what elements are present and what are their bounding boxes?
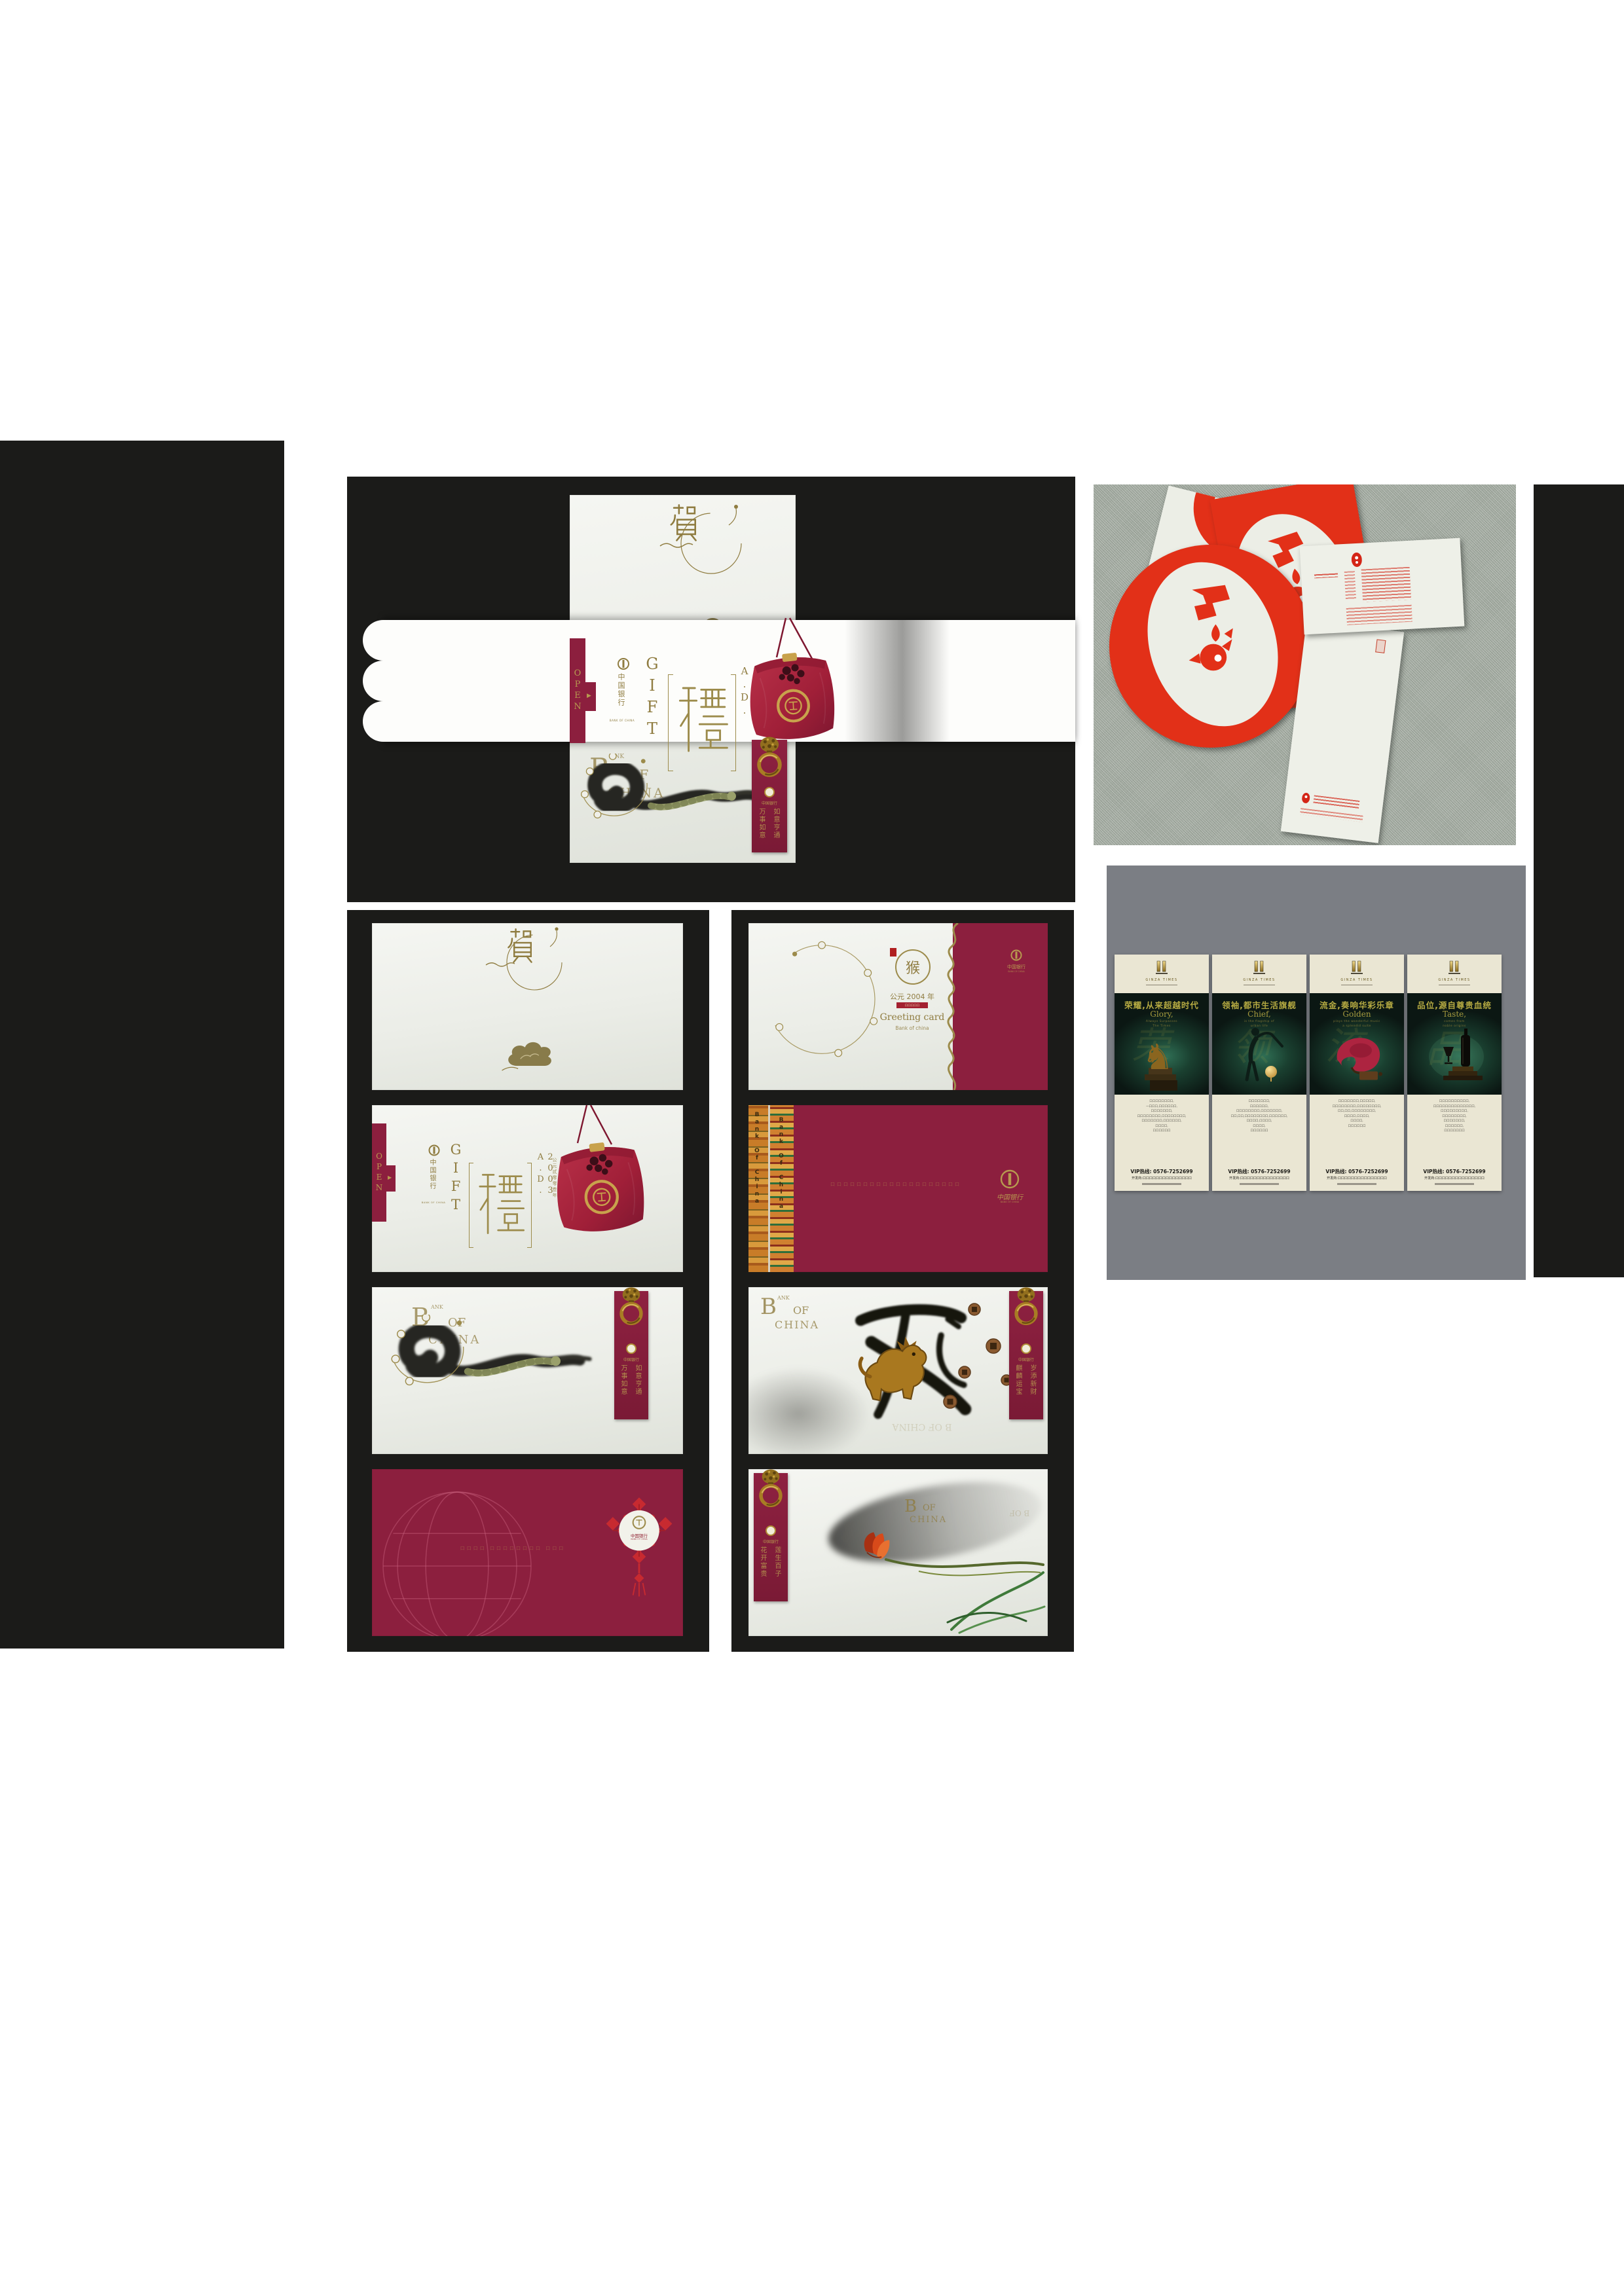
watermark-mirrored: B OF bbox=[1000, 1508, 1039, 1518]
poster-sub2: a splendid suite bbox=[1310, 1025, 1404, 1028]
letterhead-text-col bbox=[1361, 567, 1412, 602]
strip-text-right: 莲生百子 bbox=[772, 1546, 782, 1596]
zodiac-seal bbox=[890, 948, 896, 957]
red-pouch bbox=[734, 649, 849, 747]
right-black-strip bbox=[1534, 484, 1624, 1277]
body-line: 口口口口口口口口,口口口口口口口, bbox=[1236, 1110, 1282, 1114]
open-label: OPEN bbox=[573, 668, 583, 713]
poster-sub1: is the flagship of bbox=[1212, 1020, 1306, 1023]
card-ink-stroke: B ANK OF CHINA 中国银行 如意亨通 万事如意 bbox=[372, 1287, 683, 1454]
watermark-b: B bbox=[760, 1294, 777, 1320]
cloud-bracket-border bbox=[942, 923, 965, 1090]
tall-card-logo-icon bbox=[1301, 792, 1310, 803]
poster-image-area: 流 流金,奏响华彩乐章 Golden plays the wonderful m… bbox=[1310, 993, 1404, 1095]
boc-logo-icon bbox=[1010, 949, 1022, 961]
body-line: 口口口口口口口, bbox=[1249, 1100, 1270, 1104]
gift-envelope-panel: OPEN ▶ 中国银行 BANK OF CHINA GIFT 2003 A.D.… bbox=[347, 477, 1075, 902]
photo-letterhead bbox=[1300, 538, 1465, 635]
strip-text-left: 万事如意 bbox=[756, 808, 766, 850]
door-knocker-icon bbox=[1009, 1287, 1043, 1329]
strip-text-left: 麒麟运宝 bbox=[1013, 1364, 1023, 1414]
greeting-card-line: Greeting card bbox=[879, 1012, 945, 1023]
body-line: 口口口口口口口口口, bbox=[1441, 1110, 1468, 1114]
body-line: 口口口口口口口 bbox=[1444, 1129, 1465, 1133]
ink-stroke-jade-hook bbox=[573, 754, 769, 862]
brocade-strip-1: Bank Of China bbox=[748, 1105, 768, 1272]
ginza-logo-icon bbox=[1149, 960, 1175, 977]
open-arrow-icon: ▶ bbox=[587, 693, 591, 699]
card-tulip: B OF CHINA B OF 中国银行 莲生百子 花开富贵 bbox=[748, 1469, 1048, 1636]
brand-name: GINZA TIMES bbox=[1212, 978, 1306, 982]
body-line: 口口口口口口 bbox=[1348, 1125, 1366, 1129]
body-line: 口口口口,口口口口, bbox=[1344, 1115, 1370, 1119]
boc-cn-small: 中国银行 bbox=[1003, 964, 1030, 970]
watermark-mirrored: B OF CHINA bbox=[879, 1421, 965, 1432]
fine-print-line bbox=[1435, 1183, 1474, 1185]
poster-body-text: 口口口口口口口,口口口口口, 口口口口口口口口,口口口口口口口口, 口口,口口,… bbox=[1310, 1100, 1404, 1129]
poster-taste: GINZA TIMES 品 品位,源自尊贵血统 Taste, comes fro… bbox=[1407, 955, 1502, 1191]
body-line: 口口口口, bbox=[1155, 1125, 1168, 1129]
li-character-glyph bbox=[475, 1165, 526, 1243]
poster-sub1: comes from bbox=[1407, 1020, 1502, 1023]
body-line: 口口口口口口 bbox=[1153, 1129, 1171, 1133]
brand-rule bbox=[1244, 985, 1275, 985]
strip-logo-icon bbox=[766, 1525, 776, 1536]
left-black-panel bbox=[0, 441, 284, 1649]
seal-line: 口口口口口 bbox=[896, 1002, 928, 1008]
brocade-strip-text: Bank Of China bbox=[754, 1112, 760, 1269]
watermark-china: CHINA bbox=[775, 1319, 819, 1331]
strip-text-left: 花开富贵 bbox=[758, 1546, 767, 1596]
poster-headline-en: Glory, bbox=[1115, 1010, 1209, 1019]
boc-en-small: BANK OF CHINA bbox=[991, 1201, 1029, 1203]
poster-chief: GINZA TIMES 领 领袖,都市生活旗舰 Chief, is the fl… bbox=[1212, 955, 1306, 1191]
li-bracket-right bbox=[527, 1163, 532, 1248]
he-character-glyph bbox=[669, 503, 703, 542]
chinese-knot-icon bbox=[602, 1493, 676, 1599]
watermark-ank: ANK bbox=[431, 1304, 443, 1310]
cards-panel-right: 猴 公元 2004 年 口口口口口 Greeting card Bank of … bbox=[731, 910, 1074, 1652]
poster-image-area: 品 品位,源自尊贵血统 Taste, comes from noble orig… bbox=[1407, 993, 1502, 1095]
strip-logo-icon bbox=[1021, 1343, 1031, 1354]
body-line: 一口口口,口口口口口口, bbox=[1146, 1105, 1177, 1109]
body-line: 口口口口口口口口口口口口口口, bbox=[1433, 1105, 1475, 1109]
card-brocade: Bank Of China Bank Of China 口口口口口口口口口口口口… bbox=[748, 1105, 1048, 1272]
open-tab: OPEN bbox=[570, 638, 585, 743]
poster-headline-en: Chief, bbox=[1212, 1010, 1306, 1019]
brand-name: GINZA TIMES bbox=[1407, 978, 1502, 982]
boc-en-small: BANK OF CHINA bbox=[1003, 970, 1030, 973]
portfolio-page: OPEN ▶ 中国银行 BANK OF CHINA GIFT 2003 A.D.… bbox=[0, 0, 1624, 2296]
brand-name: GINZA TIMES bbox=[1115, 978, 1209, 982]
strip-text-right: 如意亨通 bbox=[771, 808, 781, 850]
tall-card-micro-text bbox=[1313, 795, 1359, 809]
medallion-en: BANK OF CHINA bbox=[621, 1538, 657, 1540]
ginza-logo-icon bbox=[1344, 960, 1370, 977]
developer-line: 开发商:口口口口口口口口口口口口口口口 bbox=[1312, 1176, 1401, 1180]
vip-hotline: VIP热线: 0576-7252699 bbox=[1115, 1168, 1209, 1175]
door-knocker-icon bbox=[614, 1286, 648, 1329]
zodiac-ring: 猴 bbox=[895, 949, 931, 985]
strip-logo-cn: 中国银行 bbox=[1011, 1357, 1041, 1362]
body-line: 口口口口口口, bbox=[1250, 1105, 1268, 1109]
strip-text-left: 万事如意 bbox=[618, 1364, 628, 1414]
body-line: 口口口口口口口口口口, bbox=[1439, 1100, 1469, 1104]
equestrian-statue-icon: ♞ bbox=[1133, 1027, 1185, 1093]
body-line: 口口口口口口, bbox=[1445, 1125, 1464, 1129]
poster-image-area: 领 领袖,都市生活旗舰 Chief, is the flagship of ur… bbox=[1212, 993, 1306, 1095]
poster-sub1: plays the wonderful music bbox=[1310, 1020, 1404, 1023]
cards-panel-left: OPEN ▶ 中国银行 BANK OF CHINA GIFT 2003 A.D.… bbox=[347, 910, 709, 1652]
brand-rule bbox=[1341, 985, 1373, 985]
ink-stroke-jade-hook bbox=[382, 1315, 598, 1432]
letterhead-label-col bbox=[1344, 571, 1356, 600]
tall-card-micro-text bbox=[1300, 808, 1363, 822]
faint-text-row: 口口口口口口口口口口口口口口口口口口口口 bbox=[814, 1181, 978, 1188]
fine-print-line bbox=[1142, 1183, 1181, 1185]
developer-line: 开发商:口口口口口口口口口口口口口口口 bbox=[1410, 1176, 1499, 1180]
bank-line: Bank of china bbox=[879, 1025, 945, 1031]
year-2004-line: 公元 2004 年 bbox=[879, 991, 945, 1002]
card-he-cover bbox=[372, 923, 683, 1090]
poster-headline-en: Taste, bbox=[1407, 1010, 1502, 1019]
card-gift: OPEN ▶ 中国银行 BANK OF CHINA GIFT 2003 A.D.… bbox=[372, 1105, 683, 1272]
brocade-strip-2: Bank Of China bbox=[770, 1105, 794, 1272]
body-line: 口口口口口口口口,口口口口口口口口, bbox=[1333, 1105, 1382, 1109]
body-line: 口口口口口口口,口口口口口口, bbox=[1141, 1120, 1181, 1123]
band-scallop bbox=[363, 620, 403, 661]
brocade-strip-text: Bank Of China bbox=[778, 1117, 784, 1267]
boc-cn-vertical: 中国银行 bbox=[427, 1159, 437, 1198]
strip-logo-cn: 中国银行 bbox=[616, 1357, 646, 1362]
wine-pedestal-icon bbox=[1424, 1027, 1486, 1086]
body-line: 口口口口口口口,口口口口口, bbox=[1338, 1100, 1376, 1104]
strip-logo-cn: 中国银行 bbox=[756, 1539, 786, 1544]
body-line: 口口,口口,口口口口口口口口, bbox=[1338, 1110, 1376, 1114]
golfer-silhouette-icon bbox=[1233, 1025, 1285, 1087]
boc-cn-vertical: 中国银行 bbox=[616, 673, 626, 716]
strip-logo-icon bbox=[626, 1343, 637, 1354]
watermark-ank: ANK bbox=[777, 1295, 790, 1301]
brand-rule bbox=[1146, 985, 1177, 985]
body-line: 口口口口, bbox=[1350, 1120, 1363, 1123]
poster-panel: GINZA TIMES 荣 荣耀,从来超越时代 Glory, Always Su… bbox=[1107, 866, 1526, 1280]
open-label: OPEN bbox=[375, 1152, 384, 1194]
fish-logo-icon bbox=[1175, 579, 1253, 681]
body-line: 口口口口口口 bbox=[1251, 1129, 1268, 1133]
faint-text-row: 口口口口 口口口口口口口口 口口口 bbox=[424, 1545, 601, 1552]
poster-golden: GINZA TIMES 流 流金,奏响华彩乐章 Golden plays the… bbox=[1310, 955, 1404, 1191]
card-bottom-section: B ANK OF CHINA 中国银行 如意亨通 万事如意 bbox=[570, 742, 796, 863]
ink-crescent-icon bbox=[763, 933, 881, 1072]
li-bracket-left bbox=[469, 1163, 473, 1248]
ginza-logo-icon bbox=[1441, 960, 1467, 977]
vip-hotline: VIP热线: 0576-7252699 bbox=[1407, 1168, 1502, 1175]
red-pouch bbox=[540, 1138, 659, 1240]
strip-logo-icon bbox=[764, 787, 775, 797]
poster-body-text: 口口口口口口口, 口口口口口口, 口口口口口口口口,口口口口口口口, 口口,口口… bbox=[1212, 1100, 1306, 1133]
globe-lines-icon bbox=[372, 1478, 565, 1636]
fine-print-line bbox=[1240, 1183, 1279, 1185]
poster-body-text: 口口口口口口口口, 一口口口,口口口口口口, 口口口口口口口, 口口口口口口口口… bbox=[1115, 1100, 1209, 1133]
ginza-logo-icon bbox=[1246, 960, 1272, 977]
band-scallop bbox=[363, 701, 403, 742]
gramophone-icon bbox=[1328, 1029, 1387, 1085]
card-monkey-2004: 猴 公元 2004 年 口口口口口 Greeting card Bank of … bbox=[748, 923, 1048, 1090]
brand-name: GINZA TIMES bbox=[1310, 978, 1404, 982]
boc-logo-icon bbox=[428, 1144, 440, 1156]
he-character-glyph bbox=[507, 927, 538, 964]
watermark-of: OF bbox=[793, 1304, 809, 1317]
body-line: 口口口口口口口口,口口口口口口口口, bbox=[1137, 1115, 1187, 1119]
grass-icon bbox=[945, 1567, 1046, 1636]
zodiac-character: 猴 bbox=[906, 957, 920, 977]
fine-print-line bbox=[1337, 1183, 1376, 1185]
boc-logo-icon bbox=[1000, 1169, 1020, 1189]
tall-card-stamp bbox=[1375, 639, 1386, 653]
body-line: 口口口口口口口, bbox=[1151, 1110, 1173, 1114]
poster-headline-en: Golden bbox=[1310, 1010, 1404, 1019]
qilin-statue-icon bbox=[848, 1332, 934, 1409]
body-line: 口口口口口口口, bbox=[1444, 1120, 1466, 1123]
poster-sub1: Always Surpasses bbox=[1115, 1020, 1209, 1023]
card-knot: 口口口口 口口口口口口口口 口口口 中国银行 BANK OF CHINA bbox=[372, 1469, 683, 1636]
boc-cn-script: 中国银行 bbox=[991, 1192, 1029, 1201]
band-shade bbox=[845, 620, 950, 742]
letterhead-text-col2 bbox=[1346, 605, 1412, 625]
letterhead-logo-icon bbox=[1351, 553, 1362, 568]
body-line: 口口口口口口口口, bbox=[1442, 1115, 1466, 1119]
band-scallop bbox=[363, 661, 403, 701]
door-knocker-icon bbox=[752, 735, 787, 781]
card-sui-qilin: B ANK OF CHINA B OF CHINA 中国银行 岁添新财 麒麟运宝 bbox=[748, 1287, 1048, 1454]
boc-en-caps: BANK OF CHINA bbox=[419, 1201, 448, 1204]
poster-glory: GINZA TIMES 荣 荣耀,从来超越时代 Glory, Always Su… bbox=[1115, 955, 1209, 1191]
gift-vertical: GIFT bbox=[448, 1142, 464, 1240]
developer-line: 开发商:口口口口口口口口口口口口口口口 bbox=[1117, 1176, 1206, 1180]
stationery-photo bbox=[1094, 484, 1516, 845]
vip-hotline: VIP热线: 0576-7252699 bbox=[1212, 1168, 1306, 1175]
boc-logo-icon bbox=[617, 657, 630, 670]
boc-en-caps: BANK OF CHINA bbox=[608, 719, 637, 722]
photo-red-disc bbox=[1109, 545, 1312, 748]
body-line: 口口,口口,口口口口口口口口,口口口口口口, bbox=[1231, 1115, 1288, 1119]
body-line: 口口口口,口口口口, bbox=[1247, 1120, 1272, 1123]
strip-logo-cn: 中国银行 bbox=[754, 800, 784, 806]
strip-text-right: 如意亨通 bbox=[633, 1364, 642, 1414]
brand-rule bbox=[1439, 985, 1470, 985]
body-line: 口口口口口口口口, bbox=[1149, 1100, 1173, 1104]
strip-text-right: 岁添新财 bbox=[1027, 1364, 1037, 1414]
poster-body-text: 口口口口口口口口口口, 口口口口口口口口口口口口口口, 口口口口口口口口口, 口… bbox=[1407, 1100, 1502, 1133]
svg-text:♞: ♞ bbox=[1142, 1036, 1173, 1078]
open-tab: OPEN bbox=[372, 1123, 386, 1222]
developer-line: 开发商:口口口口口口口口口口口口口口口 bbox=[1215, 1176, 1304, 1180]
vip-hotline: VIP热线: 0576-7252699 bbox=[1310, 1168, 1404, 1175]
letterhead-logotype bbox=[1314, 574, 1338, 579]
maroon-side-block bbox=[953, 923, 1048, 1090]
poster-image-area: 荣 荣耀,从来超越时代 Glory, Always Surpasses The … bbox=[1115, 993, 1209, 1095]
cloud-motif-icon bbox=[500, 1036, 557, 1076]
tulip-flower-icon bbox=[855, 1529, 894, 1570]
body-line: 口口口口, bbox=[1253, 1125, 1265, 1129]
open-arrow-icon: ▶ bbox=[388, 1175, 392, 1180]
door-knocker-icon bbox=[754, 1469, 788, 1511]
